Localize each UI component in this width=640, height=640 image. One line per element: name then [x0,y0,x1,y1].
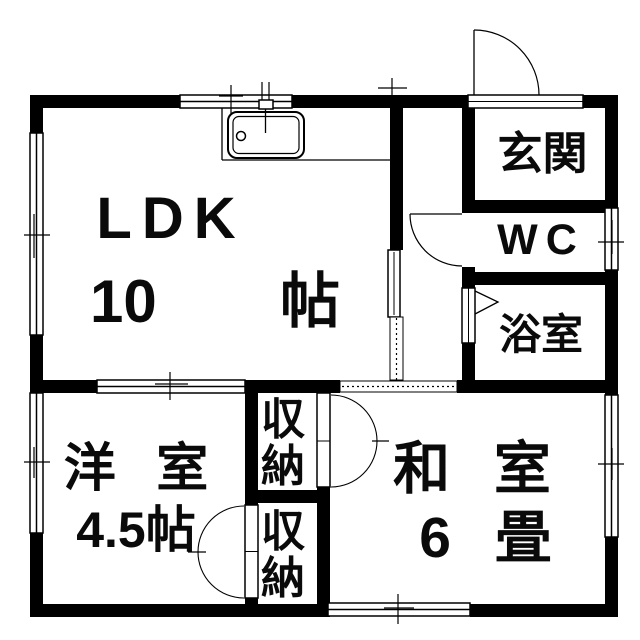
ldk-size-value: 10 [90,272,157,332]
hallway-japanese-sliding-door [340,381,457,392]
floorplan: LDK 10 帖 洋 室 4.5帖 和 室 6 畳 玄関 WC 浴室 収納 収納 [0,0,640,640]
room-size-ldk: 10 帖 [90,272,340,332]
window-left-western-room [24,393,50,533]
ldk-size-unit: 帖 [280,272,340,332]
room-label-ldk: LDK [86,190,256,248]
room-label-japanese-room: 和 室 [376,441,568,498]
window-right-japanese-room [598,395,624,537]
room-label-closet-upper: 収納 [259,396,307,490]
room-label-closet-lower: 収納 [259,508,307,602]
room-label-western-room: 洋 室 [56,443,216,495]
window-ldk-western-room [97,372,245,400]
room-size-western-room: 4.5帖 [56,505,216,555]
room-label-bathroom: 浴室 [475,314,607,356]
window-left-ldk [24,133,50,335]
vent-mark-icon [378,78,407,95]
room-label-toilet: WC [475,219,607,262]
window-bottom-japanese-room [328,594,470,624]
room-size-japanese-room: 6 畳 [398,510,573,567]
wc-door [410,214,462,266]
entrance-door [468,30,583,108]
room-label-entrance: 玄関 [475,131,610,176]
kitchen-sink-icon [222,82,390,160]
ldk-sliding-door [388,250,403,380]
